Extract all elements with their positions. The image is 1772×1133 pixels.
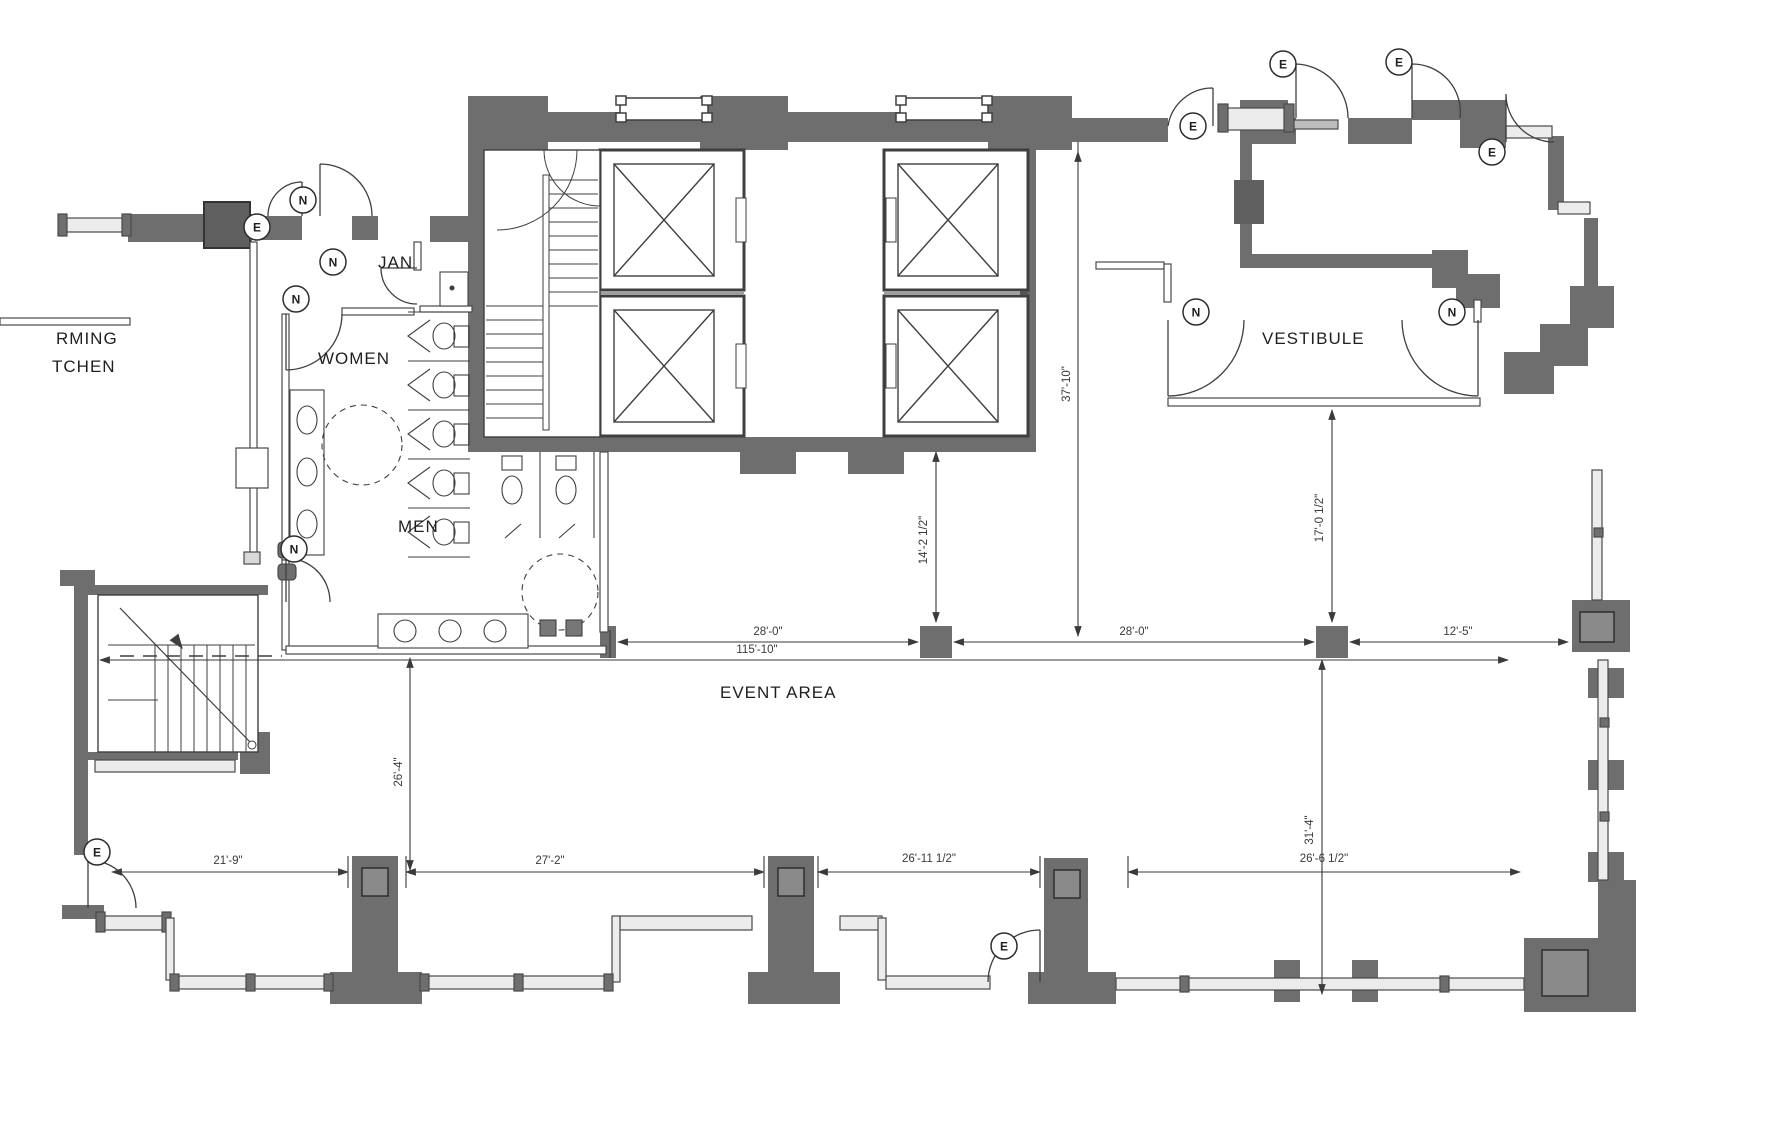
column xyxy=(1316,626,1348,658)
door-tag-e: E xyxy=(1180,113,1206,139)
accessory xyxy=(540,620,582,636)
dimensions-layer xyxy=(100,142,1568,994)
door-tag-e: E xyxy=(1479,139,1505,165)
svg-text:E: E xyxy=(1000,940,1008,954)
svg-text:E: E xyxy=(93,846,101,860)
label-kitchen-line1: RMING xyxy=(56,329,118,348)
door-tag-n: N xyxy=(290,187,316,213)
svg-text:E: E xyxy=(1488,146,1496,160)
door-tag-e: E xyxy=(991,933,1017,959)
label-men: MEN xyxy=(398,517,439,536)
dim-27-2: 27'-2" xyxy=(535,855,564,867)
door-tag-e: E xyxy=(1270,51,1296,77)
svg-text:N: N xyxy=(329,256,338,270)
svg-text:E: E xyxy=(1395,56,1403,70)
svg-text:N: N xyxy=(1192,306,1201,320)
door-tag-e: E xyxy=(244,214,270,240)
pier-inner-squares xyxy=(362,612,1614,996)
exit-stair xyxy=(98,595,258,752)
door-tag-n: N xyxy=(281,536,307,562)
label-vestibule: VESTIBULE xyxy=(1262,329,1365,348)
floor-plan-page: 37'-10" 14'-2 1/2" 17'-0 1/2" 28'-0" 28'… xyxy=(0,0,1772,1128)
door-tag-n: N xyxy=(1439,299,1465,325)
core-stair xyxy=(484,150,600,437)
dim-26-6: 26'-6 1/2" xyxy=(1300,853,1348,865)
door-tag-n: N xyxy=(283,286,309,312)
dim-115-10: 115'-10" xyxy=(736,644,777,656)
svg-text:N: N xyxy=(299,194,308,208)
dim-17-0: 17'-0 1/2" xyxy=(1314,494,1326,542)
svg-text:E: E xyxy=(1189,120,1197,134)
elevator-door xyxy=(736,198,896,388)
dim-26-11: 26'-11 1/2" xyxy=(902,853,956,865)
dim-21-9: 21'-9" xyxy=(213,855,242,867)
label-jan: JAN xyxy=(378,253,413,272)
dim-12-5: 12'-5" xyxy=(1443,626,1472,638)
door-tag-e: E xyxy=(84,839,110,865)
toilet xyxy=(502,456,576,504)
label-event-area: EVENT AREA xyxy=(720,683,836,702)
dim-31-4: 31'-4" xyxy=(1304,815,1316,844)
door-tag-n: N xyxy=(1183,299,1209,325)
svg-text:E: E xyxy=(253,221,261,235)
dim-28-0-b: 28'-0" xyxy=(1119,626,1148,638)
dim-37-10: 37'-10" xyxy=(1061,366,1073,402)
door-tag-n: N xyxy=(320,249,346,275)
svg-text:N: N xyxy=(290,543,299,557)
dim-26-4: 26'-4" xyxy=(393,757,405,786)
floor-plan-canvas: 37'-10" 14'-2 1/2" 17'-0 1/2" 28'-0" 28'… xyxy=(0,0,1772,1128)
toilet xyxy=(433,323,469,545)
dim-28-0-a: 28'-0" xyxy=(753,626,782,638)
label-kitchen-line2: TCHEN xyxy=(52,357,116,376)
svg-text:E: E xyxy=(1279,58,1287,72)
dim-14-2: 14'-2 1/2" xyxy=(918,516,930,564)
column xyxy=(204,202,250,248)
column xyxy=(920,626,952,658)
svg-text:N: N xyxy=(1448,306,1457,320)
door-tag-e: E xyxy=(1386,49,1412,75)
svg-text:N: N xyxy=(292,293,301,307)
label-women: WOMEN xyxy=(318,349,390,368)
